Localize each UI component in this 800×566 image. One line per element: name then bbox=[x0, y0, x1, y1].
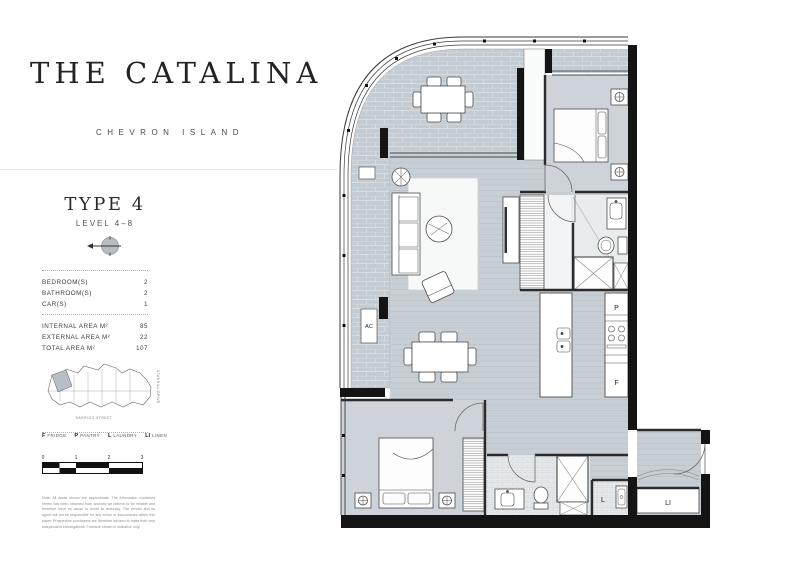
spec-row-bathrooms: BATHROOM(S) 2 bbox=[42, 288, 148, 299]
scale-bar-graphic bbox=[42, 462, 143, 475]
spec-row-bedrooms: BEDROOM(S) 2 bbox=[42, 277, 148, 288]
spec-label: BATHROOM(S) bbox=[42, 288, 92, 299]
unit-heading: TYPE 4 LEVEL 4–8 bbox=[40, 194, 170, 264]
legend-item-linen: LI LINEN bbox=[145, 433, 167, 439]
spec-value: 2 bbox=[144, 288, 148, 299]
brochure-page: THE CATALINA CHEVRON ISLAND TYPE 4 LEVEL… bbox=[0, 0, 800, 566]
fridge-label: F bbox=[614, 380, 618, 387]
sink bbox=[557, 328, 570, 339]
dining-table bbox=[412, 342, 468, 372]
spec-row-internal-area: INTERNAL AREA M² 85 bbox=[42, 321, 148, 332]
legend-item-pantry: P PANTRY bbox=[74, 433, 100, 439]
pillow bbox=[408, 493, 430, 504]
spec-value: 22 bbox=[140, 332, 148, 343]
spec-label: TOTAL AREA M² bbox=[42, 343, 95, 354]
spec-label: CAR(S) bbox=[42, 299, 67, 310]
cistern bbox=[534, 503, 548, 509]
basin bbox=[610, 203, 622, 219]
plan-legend: F FRIDGE P PANTRY L LAUNDRY LI LINEN bbox=[42, 433, 172, 439]
legend-item-laundry: L LAUNDRY bbox=[108, 433, 137, 439]
scale-bar: 0 1 2 3 bbox=[42, 455, 146, 480]
linen-label: LI bbox=[665, 500, 671, 507]
spec-value: 107 bbox=[136, 343, 148, 354]
legend-symbol: L bbox=[108, 433, 111, 439]
pillow bbox=[598, 112, 606, 134]
street-label-right: STANHILL DRIVE bbox=[156, 370, 160, 404]
toilet-2 bbox=[534, 487, 548, 503]
sink bbox=[557, 341, 570, 352]
divider bbox=[42, 314, 148, 315]
bathroom-entry-nook bbox=[544, 195, 571, 290]
scale-tick: 2 bbox=[108, 455, 111, 461]
legend-item-fridge: F FRIDGE bbox=[42, 433, 66, 439]
outdoor-table bbox=[421, 86, 465, 113]
spec-row-total-area: TOTAL AREA M² 107 bbox=[42, 343, 148, 354]
scale-tick: 1 bbox=[75, 455, 78, 461]
legend-symbol: F bbox=[42, 433, 45, 439]
legend-label: FRIDGE bbox=[47, 433, 66, 438]
page-title: THE CATALINA bbox=[30, 56, 310, 90]
street-label-bottom: DARRIGO STREET bbox=[76, 416, 113, 420]
divider bbox=[42, 270, 148, 271]
floor-plan: AC bbox=[335, 25, 715, 540]
legend-label: LAUNDRY bbox=[113, 433, 137, 438]
spec-row-external-area: EXTERNAL AREA M² 22 bbox=[42, 332, 148, 343]
spec-value: 85 bbox=[140, 321, 148, 332]
laundry-label: L bbox=[601, 497, 605, 504]
spec-row-cars: CAR(S) 1 bbox=[42, 299, 148, 310]
cooktop-controls bbox=[607, 345, 626, 348]
divider-rule bbox=[0, 169, 337, 170]
compass-icon bbox=[82, 233, 128, 259]
pantry-label: P bbox=[614, 305, 619, 312]
tv bbox=[505, 207, 508, 253]
unit-type: TYPE 4 bbox=[40, 194, 170, 215]
pillow bbox=[598, 136, 606, 158]
spec-label: INTERNAL AREA M² bbox=[42, 321, 108, 332]
ac-label: AC bbox=[365, 324, 373, 330]
legend-symbol: P bbox=[74, 433, 78, 439]
site-location-map: DARRIGO STREET STANHILL DRIVE bbox=[40, 361, 162, 425]
wardrobe-2 bbox=[463, 438, 484, 511]
wardrobe-1 bbox=[520, 195, 544, 290]
spec-label: EXTERNAL AREA M² bbox=[42, 332, 110, 343]
planter-box bbox=[359, 167, 375, 179]
unit-level: LEVEL 4–8 bbox=[40, 219, 170, 228]
scale-tick: 0 bbox=[42, 455, 45, 461]
scale-tick: 3 bbox=[141, 455, 144, 461]
cistern bbox=[618, 237, 627, 254]
basin bbox=[501, 493, 514, 506]
pillow bbox=[383, 493, 405, 504]
void bbox=[524, 49, 545, 160]
spec-table: BEDROOM(S) 2 BATHROOM(S) 2 CAR(S) 1 INTE… bbox=[42, 266, 148, 354]
spec-label: BEDROOM(S) bbox=[42, 277, 88, 288]
scale-tick-labels: 0 1 2 3 bbox=[42, 455, 146, 462]
page-subtitle: CHEVRON ISLAND bbox=[30, 128, 310, 137]
legend-label: LINEN bbox=[152, 433, 167, 438]
spec-value: 1 bbox=[144, 299, 148, 310]
disclaimer-text: Note: All areas shown are approximate. T… bbox=[42, 496, 155, 532]
spec-value: 2 bbox=[144, 277, 148, 288]
legend-symbol: LI bbox=[145, 433, 150, 439]
legend-label: PANTRY bbox=[80, 433, 100, 438]
